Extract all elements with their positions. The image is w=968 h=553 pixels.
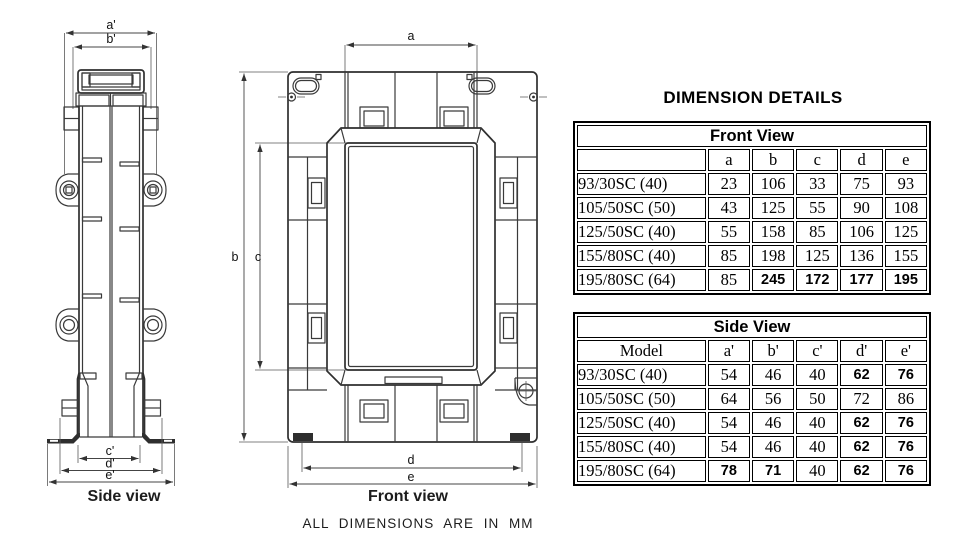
dim-label-d: d xyxy=(408,453,415,467)
side-view-caption: Side view xyxy=(54,488,194,506)
front-view-caption: Front view xyxy=(343,488,473,506)
value-cell: 106 xyxy=(752,173,794,195)
front-bottom-band xyxy=(293,378,537,441)
value-cell: 195 xyxy=(885,269,927,291)
front-dim-bottom: d e xyxy=(288,443,537,488)
value-cell: 86 xyxy=(885,388,927,410)
model-cell: 195/80SC (64) xyxy=(577,460,706,482)
value-cell: 106 xyxy=(840,221,882,243)
front-top-right-corner xyxy=(467,75,547,102)
value-cell: 93 xyxy=(885,173,927,195)
value-cell: 75 xyxy=(840,173,882,195)
column-header: a' xyxy=(708,340,750,362)
front-left-column xyxy=(288,157,327,390)
value-cell: 76 xyxy=(885,412,927,434)
column-header-model xyxy=(577,149,706,171)
column-header: b xyxy=(752,149,794,171)
table-row: 155/80SC (40)5446406276 xyxy=(577,436,927,458)
page-title: DIMENSION DETAILS xyxy=(575,88,931,108)
value-cell: 40 xyxy=(796,364,838,386)
model-cell: 125/50SC (40) xyxy=(577,221,706,243)
table-row: 105/50SC (50)6456507286 xyxy=(577,388,927,410)
model-cell: 105/50SC (50) xyxy=(577,197,706,219)
value-cell: 55 xyxy=(708,221,750,243)
side-view-table: Side ViewModela'b'c'd'e'93/30SC (40)5446… xyxy=(573,312,931,486)
front-right-column xyxy=(495,157,537,390)
body-slot-mark xyxy=(83,158,102,162)
dim-label-a-prime: a' xyxy=(106,18,115,32)
value-cell: 33 xyxy=(796,173,838,195)
table-row: 195/80SC (64)85245172177195 xyxy=(577,269,927,291)
dim-label-b: b xyxy=(232,250,239,264)
column-header: b' xyxy=(752,340,794,362)
foot-pad xyxy=(293,433,313,441)
value-cell: 62 xyxy=(840,412,882,434)
value-cell: 62 xyxy=(840,436,882,458)
value-cell: 40 xyxy=(796,412,838,434)
units-note: ALL DIMENSIONS ARE IN MM xyxy=(262,516,574,531)
value-cell: 23 xyxy=(708,173,750,195)
column-header-model: Model xyxy=(577,340,706,362)
value-cell: 76 xyxy=(885,436,927,458)
value-cell: 64 xyxy=(708,388,750,410)
value-cell: 177 xyxy=(840,269,882,291)
model-cell: 105/50SC (50) xyxy=(577,388,706,410)
value-cell: 46 xyxy=(752,436,794,458)
table-row: 125/50SC (40)5515885106125 xyxy=(577,221,927,243)
body-slot-mark xyxy=(120,227,139,231)
model-cell: 155/80SC (40) xyxy=(577,245,706,267)
model-cell: 155/80SC (40) xyxy=(577,436,706,458)
model-cell: 195/80SC (64) xyxy=(577,269,706,291)
value-cell: 76 xyxy=(885,460,927,482)
value-cell: 158 xyxy=(752,221,794,243)
column-header: e' xyxy=(885,340,927,362)
dim-label-a: a xyxy=(408,29,415,43)
dim-label-e: e xyxy=(408,470,415,484)
table-row: 93/30SC (40)5446406276 xyxy=(577,364,927,386)
model-cell: 93/30SC (40) xyxy=(577,364,706,386)
column-header: e xyxy=(885,149,927,171)
value-cell: 172 xyxy=(796,269,838,291)
value-cell: 46 xyxy=(752,412,794,434)
value-cell: 50 xyxy=(796,388,838,410)
table-row: 93/30SC (40)23106337593 xyxy=(577,173,927,195)
side-base xyxy=(62,373,161,437)
side-top-cap xyxy=(76,70,146,106)
value-cell: 72 xyxy=(840,388,882,410)
table-row: 105/50SC (50)431255590108 xyxy=(577,197,927,219)
table-row: 125/50SC (40)5446406276 xyxy=(577,412,927,434)
value-cell: 54 xyxy=(708,412,750,434)
foot-pad xyxy=(510,433,530,441)
value-cell: 40 xyxy=(796,436,838,458)
front-top-left-corner xyxy=(278,75,321,102)
value-cell: 62 xyxy=(840,364,882,386)
column-header: d xyxy=(840,149,882,171)
body-slot-mark xyxy=(120,298,139,302)
value-cell: 55 xyxy=(796,197,838,219)
value-cell: 40 xyxy=(796,460,838,482)
value-cell: 245 xyxy=(752,269,794,291)
front-top-slots xyxy=(360,107,468,128)
value-cell: 78 xyxy=(708,460,750,482)
side-mounting-ears xyxy=(56,174,166,341)
value-cell: 54 xyxy=(708,364,750,386)
value-cell: 56 xyxy=(752,388,794,410)
value-cell: 54 xyxy=(708,436,750,458)
value-cell: 125 xyxy=(796,245,838,267)
screw-icon xyxy=(60,316,78,334)
value-cell: 90 xyxy=(840,197,882,219)
model-cell: 125/50SC (40) xyxy=(577,412,706,434)
dim-label-c: c xyxy=(255,250,261,264)
body-slot-mark xyxy=(120,162,139,166)
side-view-drawing: a' b' xyxy=(26,14,226,490)
screw-icon xyxy=(144,181,162,199)
dim-label-e-prime: e' xyxy=(105,468,114,482)
column-header: c xyxy=(796,149,838,171)
value-cell: 62 xyxy=(840,460,882,482)
front-window xyxy=(327,128,495,385)
value-cell: 43 xyxy=(708,197,750,219)
value-cell: 136 xyxy=(840,245,882,267)
value-cell: 71 xyxy=(752,460,794,482)
dim-label-b-prime: b' xyxy=(106,32,115,46)
side-feet xyxy=(47,433,175,444)
label-slot xyxy=(385,377,442,384)
table-row: 155/80SC (40)85198125136155 xyxy=(577,245,927,267)
value-cell: 46 xyxy=(752,364,794,386)
value-cell: 125 xyxy=(752,197,794,219)
front-view-table: Front Viewabcde93/30SC (40)2310633759310… xyxy=(573,121,931,295)
value-cell: 198 xyxy=(752,245,794,267)
value-cell: 85 xyxy=(708,245,750,267)
column-header: c' xyxy=(796,340,838,362)
screw-icon xyxy=(144,316,162,334)
column-header: a xyxy=(708,149,750,171)
table-row: 195/80SC (64)7871406276 xyxy=(577,460,927,482)
value-cell: 85 xyxy=(796,221,838,243)
side-upper-tabs xyxy=(64,107,158,130)
value-cell: 155 xyxy=(885,245,927,267)
column-header: d' xyxy=(840,340,882,362)
body-slot-mark xyxy=(83,217,102,221)
model-cell: 93/30SC (40) xyxy=(577,173,706,195)
value-cell: 85 xyxy=(708,269,750,291)
table-title: Side View xyxy=(577,316,927,338)
screw-icon xyxy=(60,181,78,199)
body-slot-mark xyxy=(83,294,102,298)
side-dim-bottom: c' d' e' xyxy=(48,418,175,486)
front-view-drawing: a b c xyxy=(228,22,560,492)
value-cell: 76 xyxy=(885,364,927,386)
value-cell: 125 xyxy=(885,221,927,243)
table-title: Front View xyxy=(577,125,927,147)
value-cell: 108 xyxy=(885,197,927,219)
datasheet-page: a' b' xyxy=(0,0,968,553)
